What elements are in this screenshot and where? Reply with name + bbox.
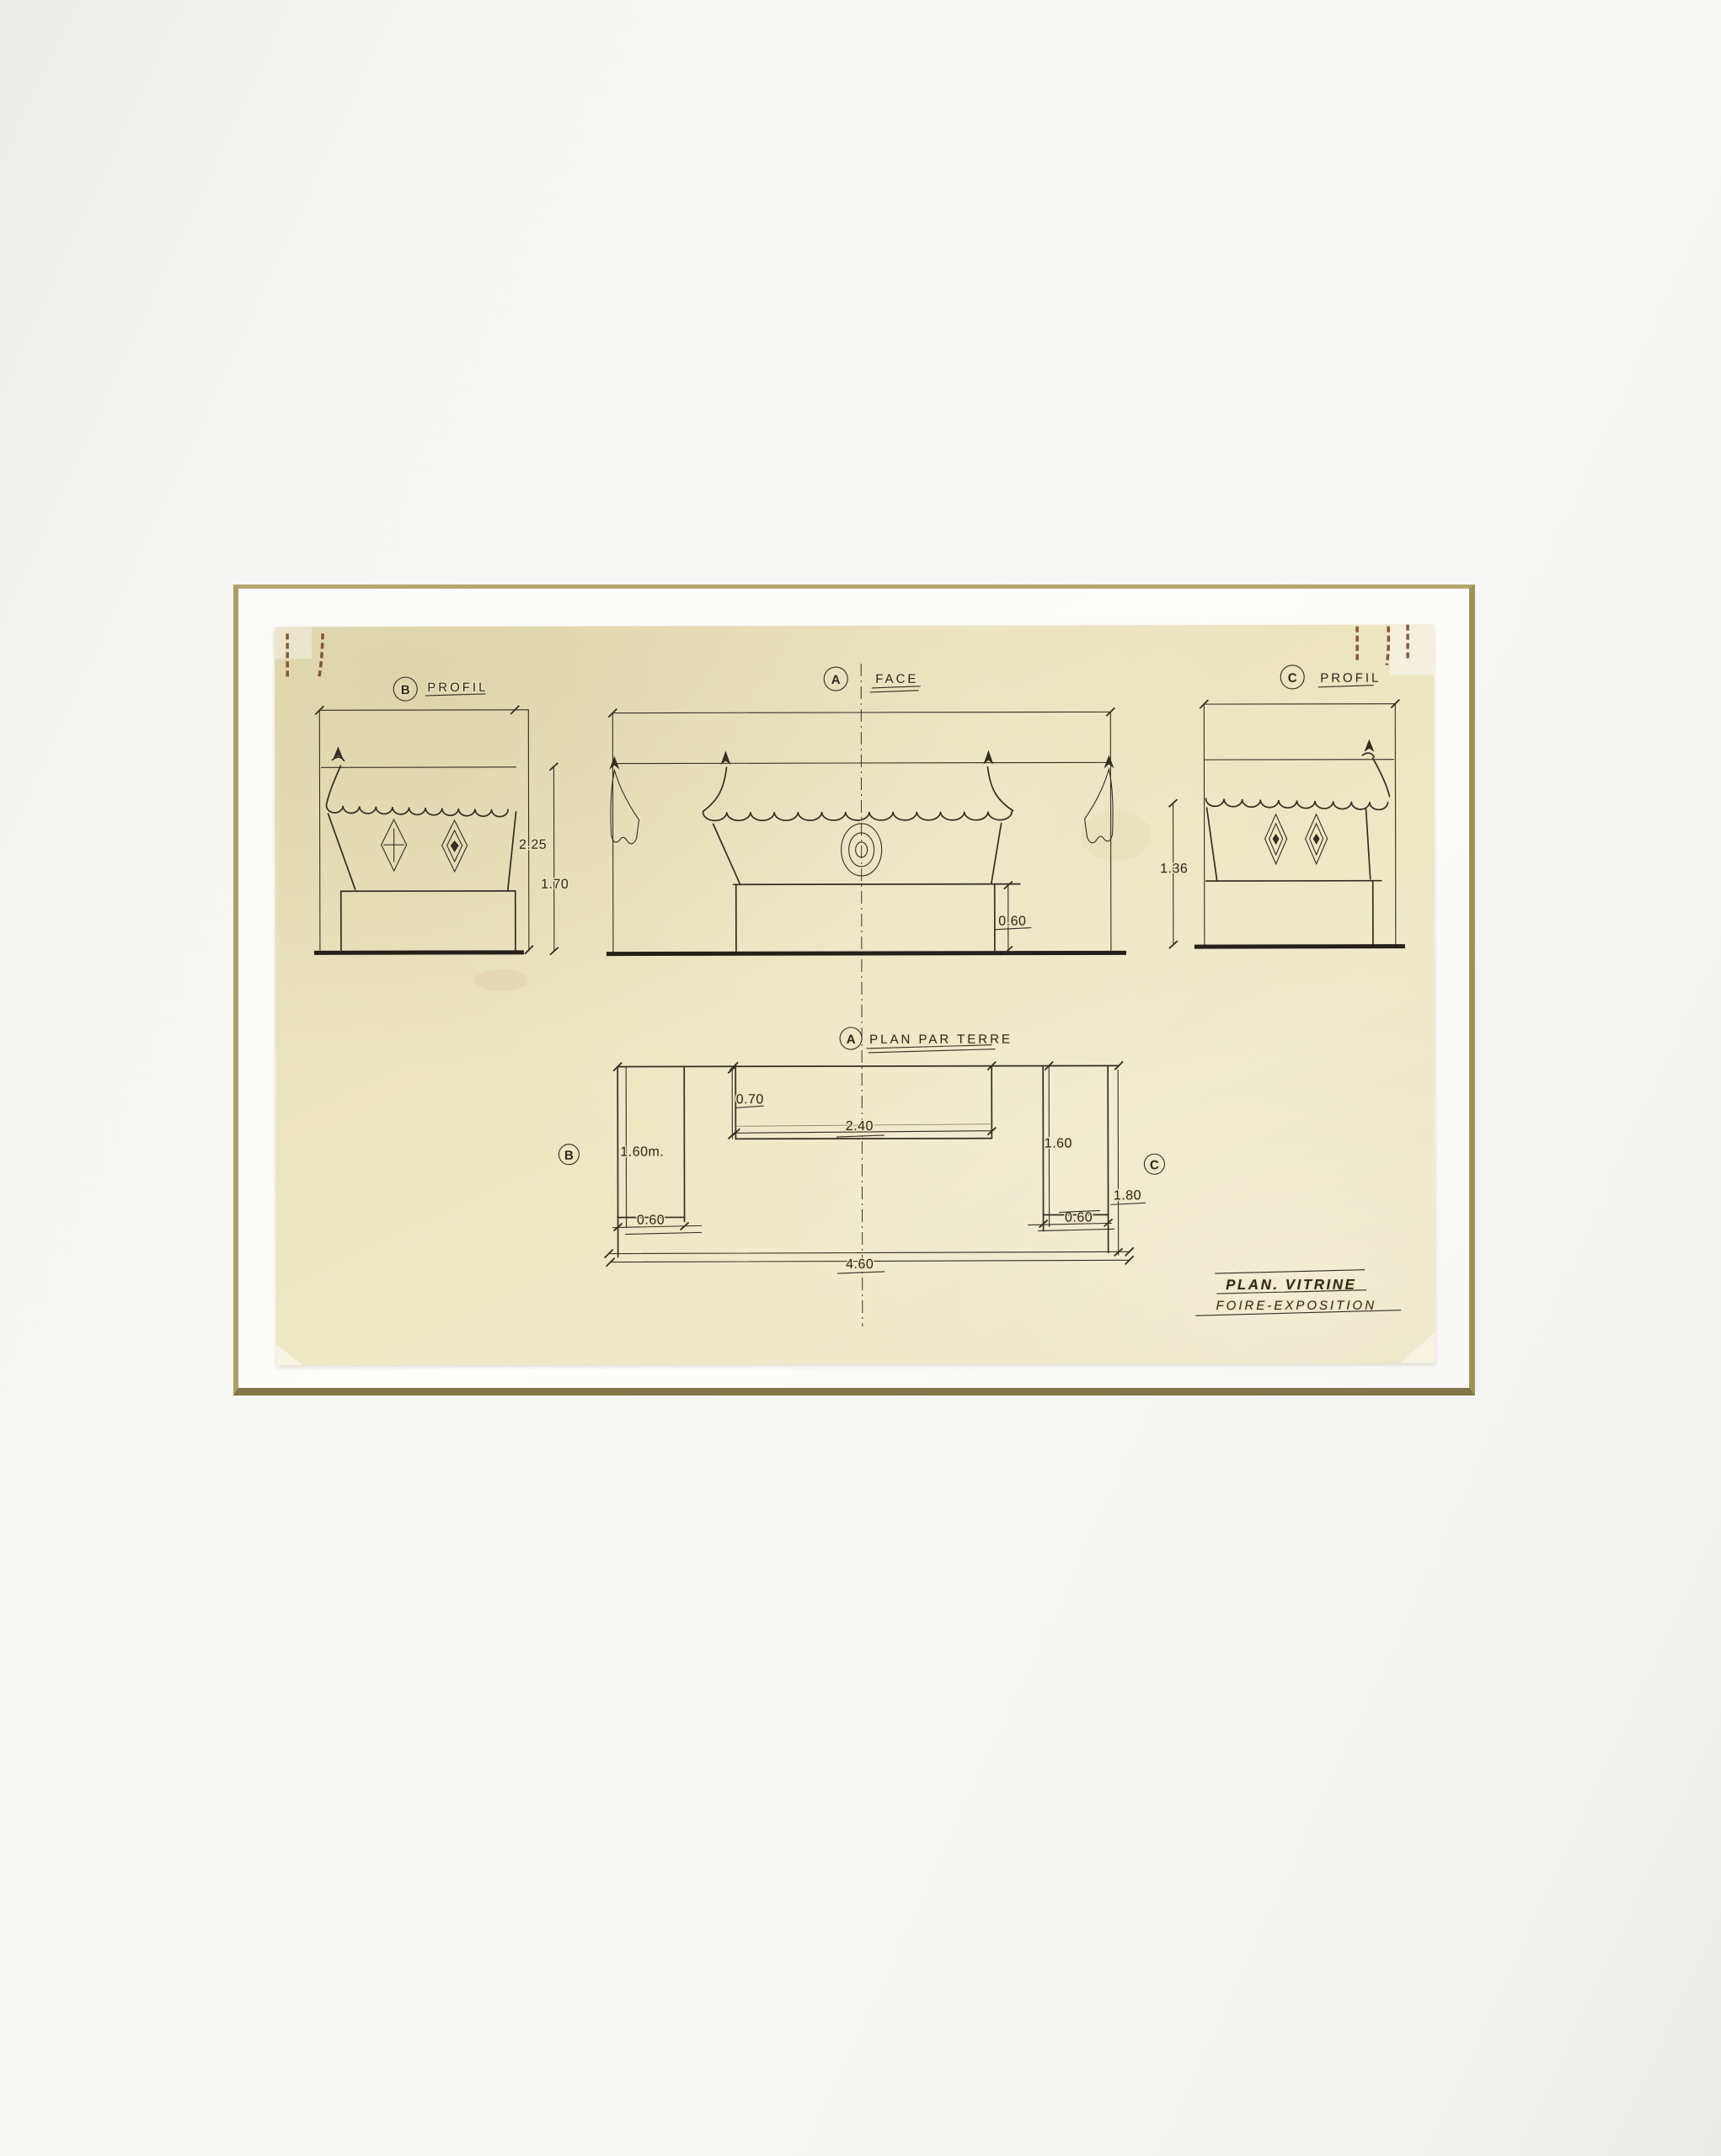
awning-scallop [1206,798,1388,810]
dimension-value: 0.70 [736,1092,764,1107]
dimension-value: 1.60m. [620,1145,664,1159]
dimension-value: 1.80 [1114,1188,1141,1203]
diamond-ornament [1306,814,1328,864]
awning-scallop [703,812,1013,821]
body-edge [508,812,516,891]
tape-remnant-top-left [275,627,312,659]
label-underline [872,686,920,688]
diamond-ornament [382,819,407,871]
dim-underline [838,1272,885,1273]
view-title: FACE [875,672,918,686]
diamond-center [1313,834,1320,845]
dimension-value: 0.60 [1065,1210,1093,1225]
dimension-line [626,1232,702,1234]
diamond-center [1273,834,1280,845]
roof-curve [703,767,726,811]
dimension-line [1039,1229,1114,1230]
drawing-subtitle: FOIRE-EXPOSITION [1216,1299,1376,1313]
view-label-plan: A PLAN PAR TERRE [840,1027,1013,1053]
diamond-center [451,841,459,852]
view-label-b: B PROFIL [393,677,488,701]
extension-line [1110,712,1111,951]
extension-line [612,713,613,953]
diamond-ornament [442,820,468,872]
dim-underline [1111,1203,1146,1204]
label-underline [870,691,918,692]
extension-line [1395,704,1396,945]
corner-fold-bottom-left [276,1344,303,1365]
pink-smudge [474,969,528,991]
view-label-a: A FACE [824,667,920,692]
finial-curl [1362,753,1374,757]
dimension-line [528,710,529,951]
dimension-line [319,710,528,711]
view-letter: A [831,673,841,687]
view-face-a: A FACE [606,666,1126,954]
finial-spear-icon [1364,739,1374,752]
roof-curve [326,766,340,804]
body-edge [329,814,355,889]
dimension-line [612,712,1110,712]
roof-curve [1372,758,1389,797]
dimension-value: 1.70 [541,878,569,892]
dimension-value: 1.36 [1160,862,1188,876]
dimension-value: 2.40 [846,1119,874,1134]
body-edge [1366,809,1371,879]
body-edge [714,824,740,884]
tape-remnant-top-right [1390,625,1434,675]
view-label-c: C PROFIL [1280,665,1381,689]
dim-underline [836,1135,884,1137]
label-underline [869,1049,995,1053]
corner-fold-bottom-right [1400,1332,1435,1364]
view-title: PROFIL [427,680,488,695]
view-letter: B [401,683,410,697]
title-overline [1216,1270,1365,1273]
label-underline [1318,686,1373,687]
paper-blotch [1081,810,1152,861]
dimension-value: 0.60 [998,915,1026,929]
rust-stain-icon [318,633,323,679]
view-profil-c: C PROFIL [1160,665,1405,949]
dimension-value: 1.60 [1045,1136,1072,1150]
pennant-spear-icon [609,756,619,770]
mat-frame: B PROFIL [233,584,1475,1396]
drawing-paper: B PROFIL [275,625,1435,1366]
view-letter: A [847,1033,856,1047]
technical-drawing: B PROFIL [275,625,1435,1366]
view-profil-b: B PROFIL [313,677,569,956]
dimension-value: 2.25 [519,838,547,852]
roof-ridge-line [612,762,1110,763]
roof-curve [987,767,1013,811]
dimension-value: 0.60 [637,1213,665,1227]
corner-pennant [611,771,639,844]
ground-line [1195,947,1405,947]
extension-line [1204,704,1205,945]
view-letter: C [1288,671,1297,686]
pennant-spear-icon [1104,755,1114,768]
ground-line [314,953,524,953]
rust-stain-icon [1387,627,1388,665]
diamond-ornament [1265,814,1287,864]
base-top-line [734,884,1020,885]
plan-ref-letter: C [1150,1158,1159,1172]
dimension-line [609,1251,1130,1253]
dimension-value: 4.60 [846,1257,874,1272]
counter-edge [735,1139,991,1139]
ground-line [607,953,1126,953]
awning-scallop [327,805,509,817]
body-edge [1207,808,1217,881]
title-block: PLAN. VITRINE FOIRE-EXPOSITION [1196,1270,1401,1316]
tape-stains [275,625,1435,1366]
body-edge [991,824,1002,884]
plan-ref-letter: B [564,1149,574,1163]
view-title: PROFIL [1320,671,1381,686]
extension-line [319,710,320,950]
